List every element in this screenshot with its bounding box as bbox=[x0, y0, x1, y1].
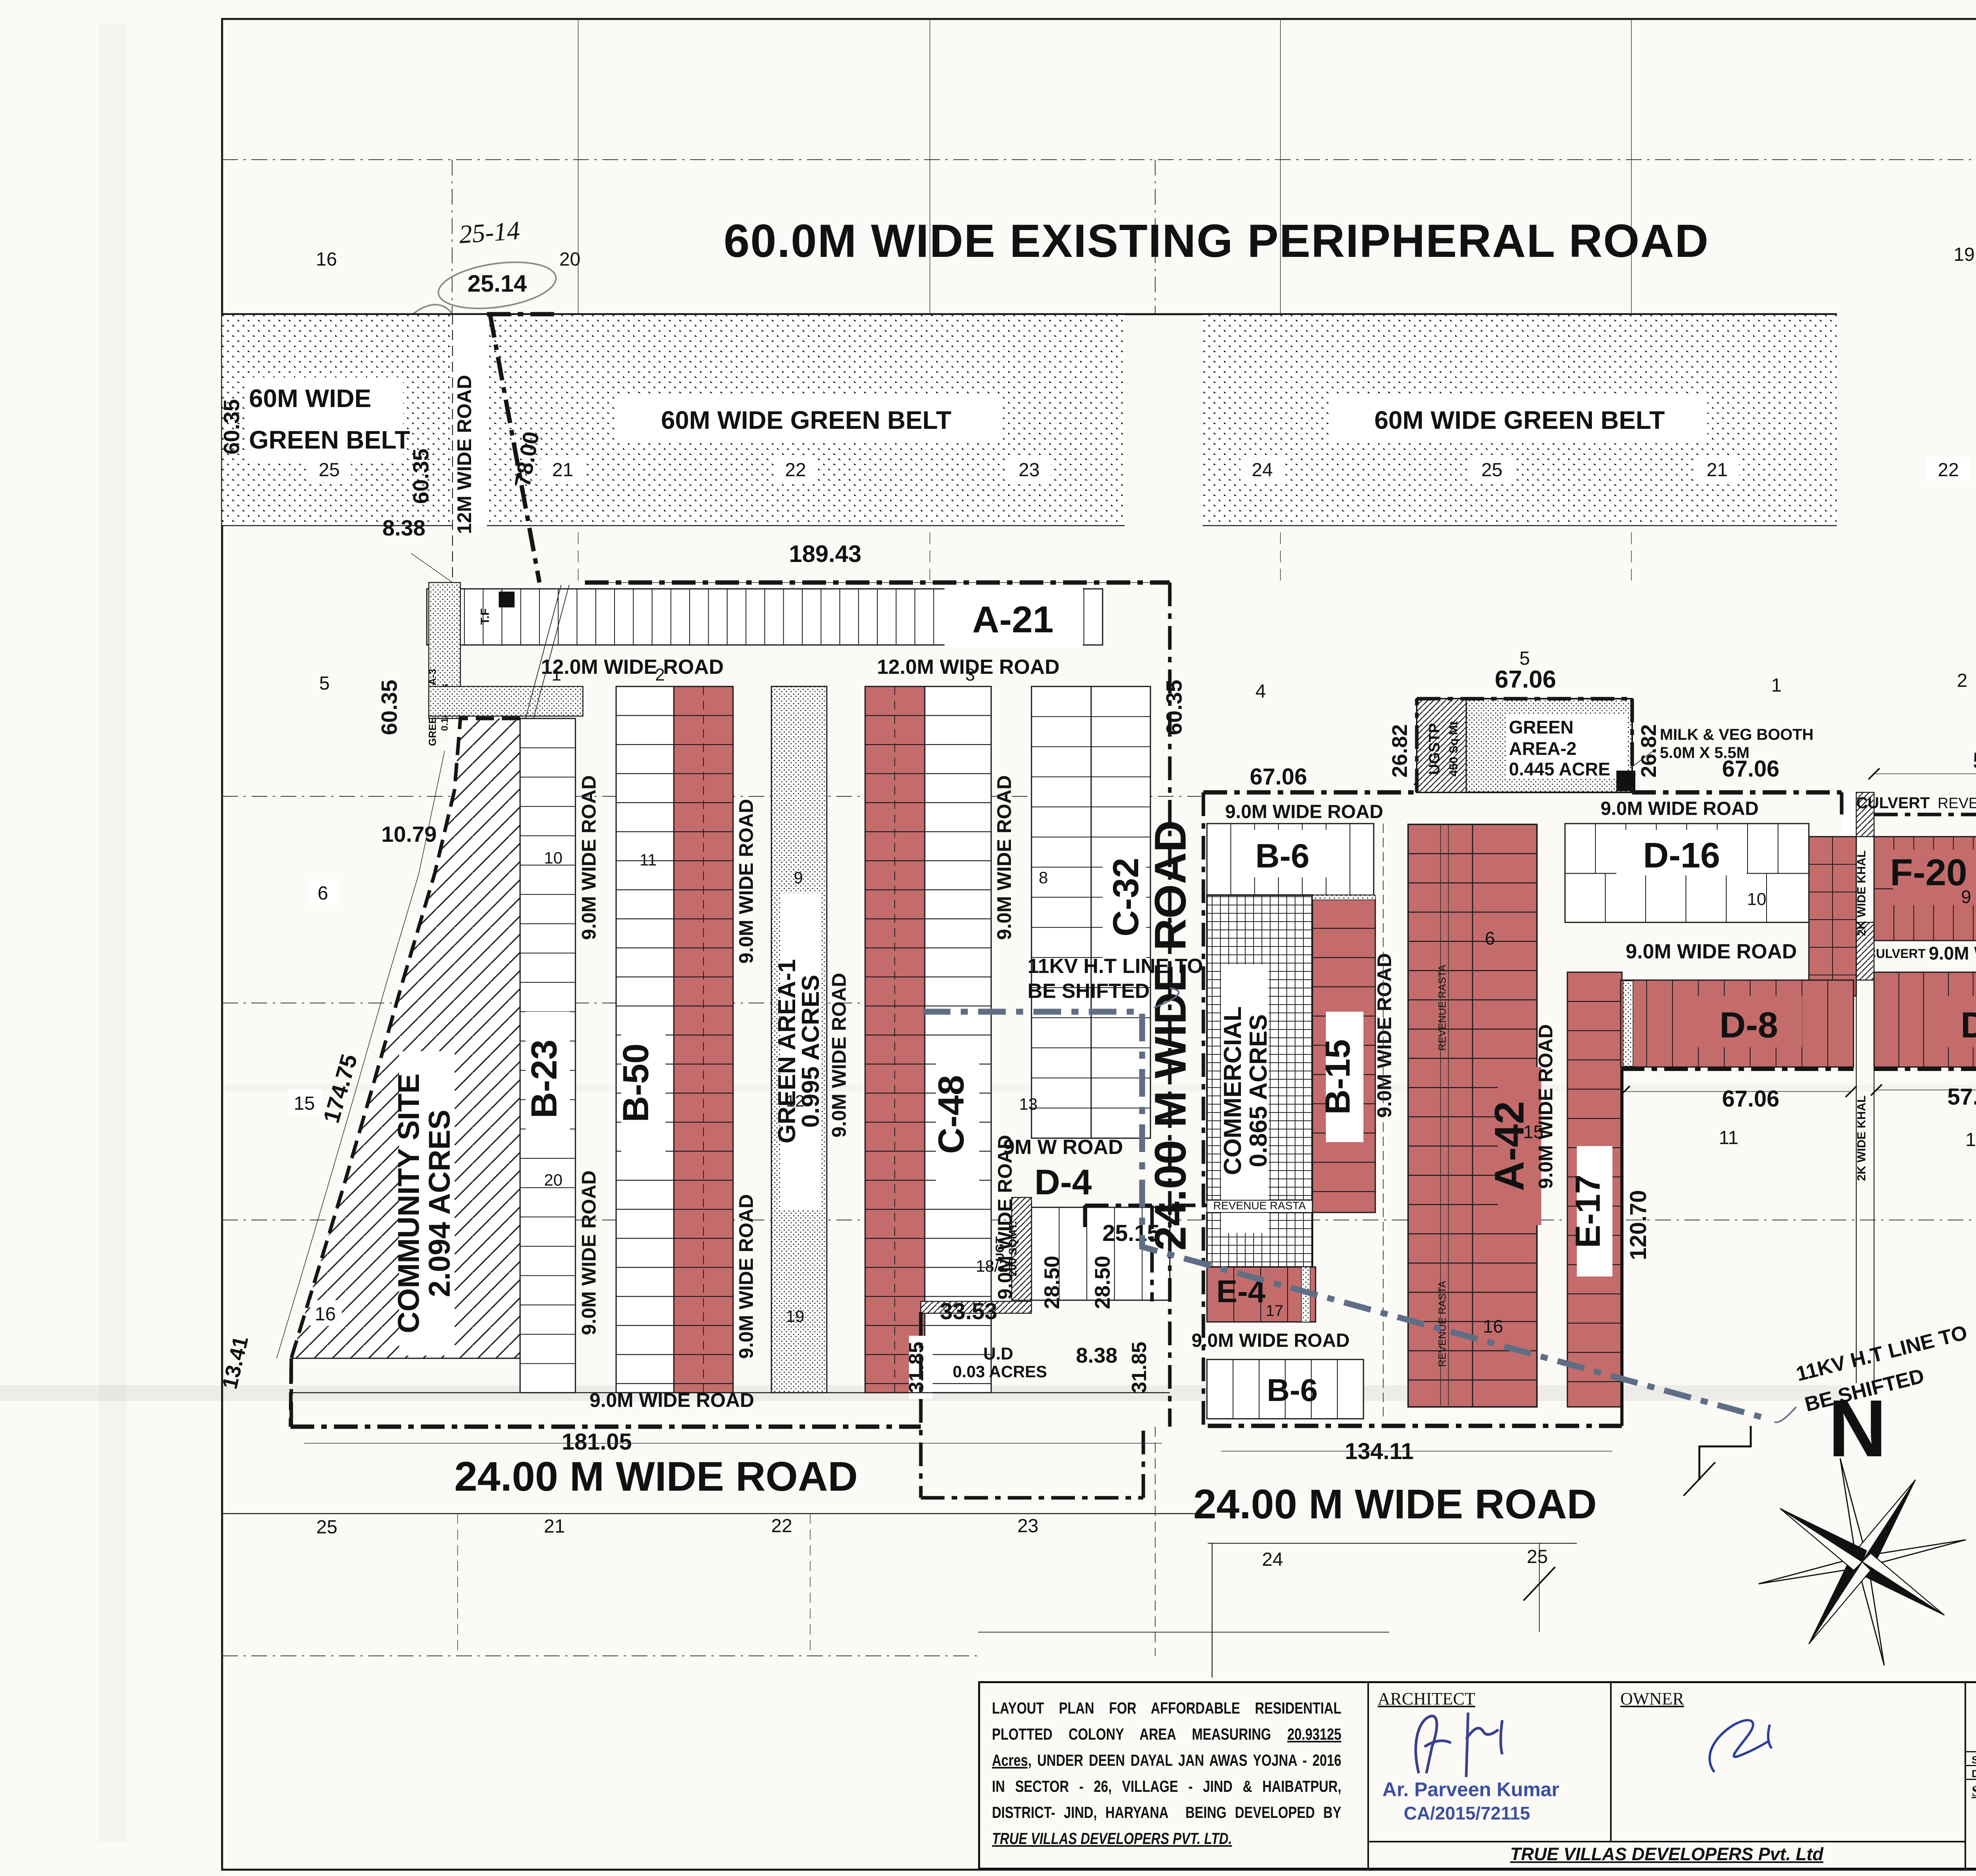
svg-text:REVENUE RASTA: REVENUE RASTA bbox=[1938, 795, 1976, 812]
svg-text:120.70: 120.70 bbox=[1625, 1190, 1651, 1260]
svg-text:16: 16 bbox=[1483, 1316, 1503, 1337]
svg-text:8.38: 8.38 bbox=[383, 515, 426, 540]
svg-text:REVENUE RASTA: REVENUE RASTA bbox=[1436, 1281, 1448, 1367]
svg-text:19: 19 bbox=[786, 1307, 805, 1325]
svg-text:6: 6 bbox=[1485, 928, 1495, 948]
svg-text:9.0M WIDE ROAD: 9.0M WIDE ROAD bbox=[1192, 1330, 1350, 1351]
svg-text:2.094 ACRES: 2.094 ACRES bbox=[423, 1110, 456, 1297]
svg-text:10: 10 bbox=[1747, 890, 1767, 909]
svg-text:12: 12 bbox=[1965, 1129, 1976, 1150]
svg-text:8: 8 bbox=[1039, 868, 1048, 887]
svg-text:60.35: 60.35 bbox=[219, 399, 244, 454]
svg-text:9.0M WIDE ROAD: 9.0M WIDE ROAD bbox=[578, 1171, 600, 1335]
svg-text:181.05: 181.05 bbox=[562, 1429, 632, 1455]
svg-text:8.38: 8.38 bbox=[1076, 1344, 1117, 1367]
svg-text:60M WIDE GREEN BELT: 60M WIDE GREEN BELT bbox=[1375, 406, 1665, 434]
svg-text:9.0M WIDE ROAD: 9.0M WIDE ROAD bbox=[828, 973, 850, 1138]
svg-text:9.0M WIDE ROAD: 9.0M WIDE ROAD bbox=[735, 799, 757, 964]
svg-text:15: 15 bbox=[294, 1093, 315, 1114]
svg-text:1: 1 bbox=[1771, 675, 1782, 696]
svg-text:17: 17 bbox=[1266, 1302, 1284, 1320]
svg-text:21: 21 bbox=[1706, 460, 1727, 481]
svg-text:D-4: D-4 bbox=[1034, 1163, 1092, 1202]
svg-text:REVENUE RASTA: REVENUE RASTA bbox=[1213, 1199, 1306, 1212]
svg-text:10: 10 bbox=[544, 848, 563, 867]
svg-text:9: 9 bbox=[1961, 886, 1971, 907]
svg-text:C-48: C-48 bbox=[931, 1075, 971, 1154]
svg-text:21: 21 bbox=[552, 460, 573, 481]
svg-text:UGSTP: UGSTP bbox=[1426, 723, 1443, 775]
svg-text:25: 25 bbox=[319, 460, 339, 481]
svg-text:10.79: 10.79 bbox=[381, 822, 437, 847]
svg-text:D-16: D-16 bbox=[1643, 836, 1720, 875]
svg-text:2K WIDE KHAL: 2K WIDE KHAL bbox=[1855, 1095, 1868, 1181]
svg-text:16: 16 bbox=[316, 249, 337, 270]
svg-text:9.0M WIDE ROAD: 9.0M WIDE ROAD bbox=[1535, 1024, 1557, 1189]
svg-text:25.14: 25.14 bbox=[468, 270, 527, 297]
svg-text:AREA-2: AREA-2 bbox=[1509, 738, 1576, 759]
svg-text:B-6: B-6 bbox=[1267, 1373, 1318, 1408]
svg-text:9M W ROAD: 9M W ROAD bbox=[1003, 1136, 1123, 1159]
svg-text:REVENUE RASTA: REVENUE RASTA bbox=[1436, 965, 1448, 1051]
svg-text:31.85: 31.85 bbox=[905, 1342, 928, 1393]
svg-text:26.82: 26.82 bbox=[1637, 724, 1661, 777]
svg-text:GREEN AREA-1: GREEN AREA-1 bbox=[773, 959, 801, 1143]
svg-text:12M WIDE ROAD: 12M WIDE ROAD bbox=[453, 375, 475, 534]
svg-text:11: 11 bbox=[639, 850, 657, 869]
svg-text:6: 6 bbox=[318, 883, 328, 904]
svg-text:28.50: 28.50 bbox=[1091, 1256, 1114, 1309]
svg-text:57.00: 57.00 bbox=[1973, 748, 1976, 774]
svg-text:9.0M WIDE ROAD: 9.0M WIDE ROAD bbox=[735, 1194, 757, 1359]
svg-text:9.0M WIDE ROAD: 9.0M WIDE ROAD bbox=[993, 775, 1015, 940]
svg-text:60M WIDE: 60M WIDE bbox=[249, 384, 371, 413]
svg-text:2K WIDE KHAL: 2K WIDE KHAL bbox=[1855, 850, 1868, 936]
svg-text:1: 1 bbox=[552, 665, 561, 684]
svg-text:3: 3 bbox=[965, 665, 975, 684]
svg-text:12.0M WIDE ROAD: 12.0M WIDE ROAD bbox=[541, 656, 724, 679]
svg-text:D-8: D-8 bbox=[1720, 1005, 1778, 1045]
svg-text:11KV H.T LINE TO: 11KV H.T LINE TO bbox=[1028, 955, 1203, 978]
svg-text:GREEN: GREEN bbox=[1509, 717, 1574, 737]
svg-text:BE SHIFTED: BE SHIFTED bbox=[1028, 980, 1150, 1003]
svg-text:A-21: A-21 bbox=[972, 599, 1054, 641]
svg-text:24.00 M WIDE ROAD: 24.00 M WIDE ROAD bbox=[454, 1454, 858, 1500]
svg-text:COMMUNITY SITE: COMMUNITY SITE bbox=[392, 1073, 426, 1333]
svg-text:A-42: A-42 bbox=[1486, 1101, 1533, 1191]
svg-text:2: 2 bbox=[1957, 670, 1968, 691]
svg-text:0.445 ACRE: 0.445 ACRE bbox=[1509, 759, 1610, 779]
svg-text:22: 22 bbox=[1938, 460, 1959, 481]
svg-text:0.865 ACRES: 0.865 ACRES bbox=[1245, 1014, 1272, 1167]
svg-text:200 SQMT.: 200 SQMT. bbox=[1007, 1221, 1019, 1276]
svg-text:GREEN BELT: GREEN BELT bbox=[249, 426, 410, 454]
svg-text:9.0M WIDE ROAD: 9.0M WIDE ROAD bbox=[1373, 953, 1395, 1118]
svg-text:24: 24 bbox=[1252, 460, 1273, 481]
svg-text:23: 23 bbox=[1018, 460, 1039, 481]
svg-text:5.0M X 5.5M: 5.0M X 5.5M bbox=[1660, 744, 1750, 762]
svg-text:C-32: C-32 bbox=[1106, 858, 1146, 936]
svg-text:13: 13 bbox=[1019, 1095, 1038, 1113]
svg-text:57.00: 57.00 bbox=[1947, 1084, 1976, 1110]
svg-text:D-7: D-7 bbox=[1961, 1005, 1976, 1045]
svg-text:60.35: 60.35 bbox=[377, 680, 402, 735]
svg-text:60M WIDE GREEN BELT: 60M WIDE GREEN BELT bbox=[661, 406, 952, 434]
svg-text:9.0M WIDE ROAD: 9.0M WIDE ROAD bbox=[1601, 798, 1759, 819]
svg-text:26.82: 26.82 bbox=[1388, 724, 1412, 777]
svg-text:20: 20 bbox=[559, 249, 580, 270]
svg-text:67.06: 67.06 bbox=[1495, 666, 1556, 693]
svg-text:450 Sq.Mt: 450 Sq.Mt bbox=[1447, 721, 1460, 777]
svg-text:CULVERT: CULVERT bbox=[1867, 946, 1926, 961]
svg-text:25: 25 bbox=[1527, 1546, 1548, 1567]
svg-text:19: 19 bbox=[1953, 244, 1974, 265]
svg-text:9.0M WIDE ROAD: 9.0M WIDE ROAD bbox=[1625, 940, 1797, 963]
svg-text:B-6: B-6 bbox=[1256, 837, 1310, 875]
svg-text:25-14: 25-14 bbox=[458, 216, 521, 249]
svg-text:24.00 M WIDE ROAD: 24.00 M WIDE ROAD bbox=[1146, 820, 1195, 1250]
svg-text:33.53: 33.53 bbox=[940, 1299, 997, 1324]
svg-text:MILK & VEG BOOTH: MILK & VEG BOOTH bbox=[1660, 726, 1814, 743]
svg-text:N: N bbox=[1828, 1383, 1887, 1474]
svg-text:21: 21 bbox=[544, 1516, 565, 1537]
svg-text:24.00 M WIDE ROAD: 24.00 M WIDE ROAD bbox=[1193, 1481, 1597, 1527]
svg-text:60.35: 60.35 bbox=[1161, 680, 1186, 735]
svg-text:67.06: 67.06 bbox=[1722, 1086, 1779, 1112]
svg-text:COMMERCIAL: COMMERCIAL bbox=[1219, 1006, 1246, 1175]
svg-text:16: 16 bbox=[315, 1304, 336, 1325]
svg-text:23: 23 bbox=[1017, 1516, 1038, 1537]
svg-text:E-17: E-17 bbox=[1568, 1175, 1607, 1248]
svg-text:22: 22 bbox=[771, 1516, 792, 1537]
svg-text:25: 25 bbox=[1481, 460, 1502, 481]
svg-text:28.50: 28.50 bbox=[1040, 1256, 1064, 1309]
svg-text:60.0M WIDE EXISTING PERIPHERAL: 60.0M WIDE EXISTING PERIPHERAL ROAD bbox=[724, 215, 1709, 267]
svg-text:25: 25 bbox=[316, 1517, 337, 1538]
svg-text:0.03 ACRES: 0.03 ACRES bbox=[953, 1362, 1047, 1381]
svg-text:5: 5 bbox=[319, 673, 330, 694]
svg-text:2: 2 bbox=[655, 665, 665, 684]
svg-text:189.43: 189.43 bbox=[789, 541, 862, 567]
svg-text:12: 12 bbox=[786, 1092, 805, 1110]
svg-text:B-15: B-15 bbox=[1318, 1039, 1357, 1115]
svg-text:60.35: 60.35 bbox=[408, 449, 433, 504]
svg-text:4: 4 bbox=[1256, 681, 1266, 702]
svg-text:9.0M WIDE ROAD: 9.0M WIDE ROAD bbox=[578, 775, 600, 940]
svg-text:UGT: UGT bbox=[994, 1236, 1007, 1261]
svg-text:31.85: 31.85 bbox=[1128, 1342, 1151, 1393]
svg-text:22: 22 bbox=[785, 460, 806, 481]
svg-text:B-50: B-50 bbox=[616, 1043, 656, 1122]
svg-text:F-20: F-20 bbox=[1890, 852, 1967, 894]
svg-text:CULVERT: CULVERT bbox=[1856, 794, 1930, 812]
svg-text:20: 20 bbox=[544, 1171, 563, 1189]
svg-text:67.06: 67.06 bbox=[1250, 764, 1307, 790]
svg-text:9.0M WIDE ROAD: 9.0M WIDE ROAD bbox=[1225, 801, 1383, 822]
svg-text:9.0M WIDE ROAD: 9.0M WIDE ROAD bbox=[1929, 943, 1976, 963]
svg-text:11: 11 bbox=[1719, 1127, 1738, 1148]
svg-text:U.D: U.D bbox=[983, 1344, 1013, 1363]
svg-text:T.F: T.F bbox=[479, 608, 492, 625]
svg-text:24: 24 bbox=[1262, 1549, 1283, 1570]
svg-text:9: 9 bbox=[794, 868, 803, 887]
svg-text:B-23: B-23 bbox=[524, 1039, 564, 1118]
